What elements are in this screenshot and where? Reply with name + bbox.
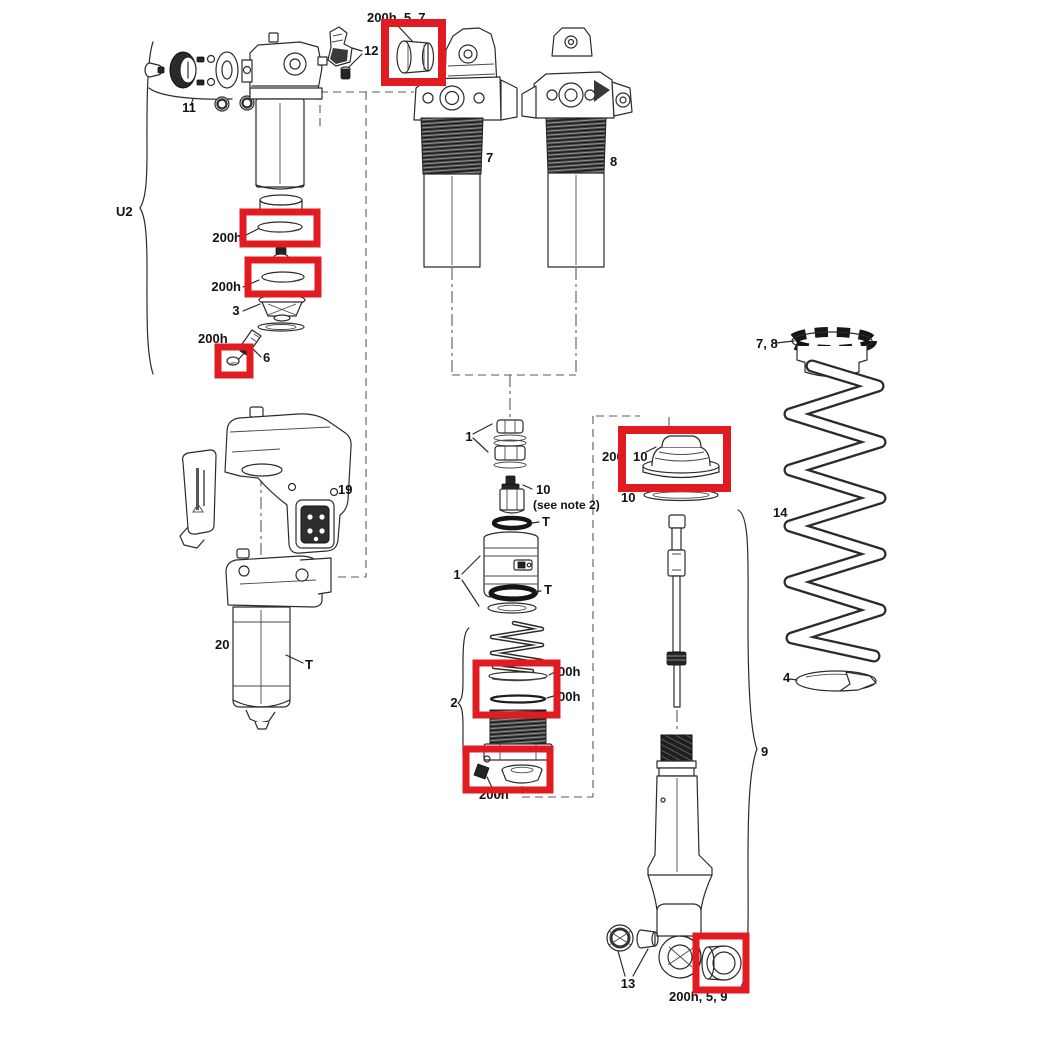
spring-retainer-part-4 (790, 671, 876, 691)
glide-ring-lower (243, 272, 304, 287)
u2-brace (140, 42, 153, 374)
label-ring-upper-200h: 200h (212, 230, 242, 245)
damper-head-assembly (242, 33, 327, 213)
label-part-3: 3 (232, 303, 239, 318)
label-one-bottom: 1 (453, 567, 460, 582)
reservoir-part-20 (226, 549, 331, 729)
shock-body-7 (414, 28, 517, 267)
label-ten-box: 10 (633, 449, 647, 464)
label-see-note: (see note 2) (533, 498, 600, 512)
damper-shaft (667, 515, 686, 707)
label-t-upper: T (542, 514, 550, 529)
module-part-19 (180, 407, 351, 553)
label-ten-mid: 10 (536, 482, 550, 497)
label-part-2: 2 (450, 695, 457, 710)
label-ring-lower-200h: 200h (211, 279, 241, 294)
seal-rings-00h (489, 671, 557, 703)
label-part-9: 9 (761, 744, 768, 759)
label-part-12: 12 (364, 43, 378, 58)
label-part-7: 7 (486, 150, 493, 165)
damper-body (648, 735, 712, 936)
parts-diagram-page: U2 11 (0, 0, 1045, 1046)
label-part-8: 8 (610, 154, 617, 169)
air-piston-part-1 (462, 532, 538, 606)
t-oring-upper (494, 518, 539, 528)
label-collar-78: 7, 8 (756, 336, 778, 351)
label-part-4: 4 (783, 670, 791, 685)
label-ten-ring: 10 (621, 490, 635, 505)
label-t-lower: T (544, 582, 552, 597)
piston-part-3 (243, 295, 305, 331)
label-part-11: 11 (182, 100, 196, 115)
label-t-can: T (305, 657, 313, 672)
label-part-13: 13 (621, 976, 635, 991)
label-part-14: 14 (773, 505, 788, 520)
label-part-20: 20 (215, 637, 229, 652)
label-one-top: 1 (465, 429, 472, 444)
coil-spring-part-14 (790, 366, 880, 656)
exploded-diagram-canvas: U2 11 (0, 0, 1045, 1046)
aircan-top-hardware (473, 420, 526, 468)
part-9-brace (738, 510, 757, 989)
label-u2: U2 (116, 204, 133, 219)
shock-body-8 (522, 28, 632, 267)
label-00h-b: 00h (558, 689, 580, 704)
label-part-19: 19 (338, 482, 352, 497)
top-bushing-part (397, 27, 434, 73)
label-00h-a: 00h (558, 664, 580, 679)
glide-ring-upper (244, 222, 302, 236)
part-11-hardware (145, 52, 254, 111)
mounting-hardware-13 (607, 925, 658, 976)
label-part-6: 6 (263, 350, 270, 365)
wiper-seal-part-10 (643, 436, 719, 478)
lever-part-12 (328, 27, 362, 79)
rebound-adjuster-part-10 (500, 476, 532, 513)
eyelet-bushing-highlighted (702, 946, 741, 980)
